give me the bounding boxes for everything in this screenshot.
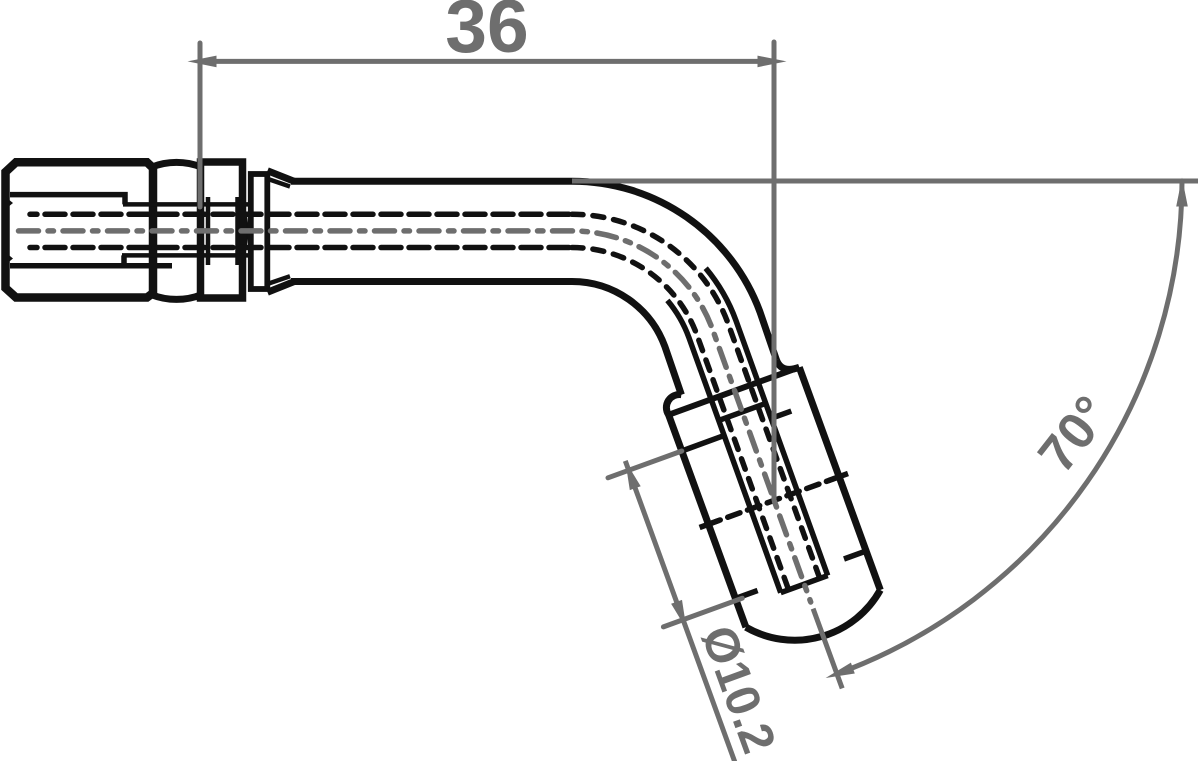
svg-text:70°: 70°: [1028, 386, 1122, 484]
svg-text:36: 36: [445, 0, 528, 68]
